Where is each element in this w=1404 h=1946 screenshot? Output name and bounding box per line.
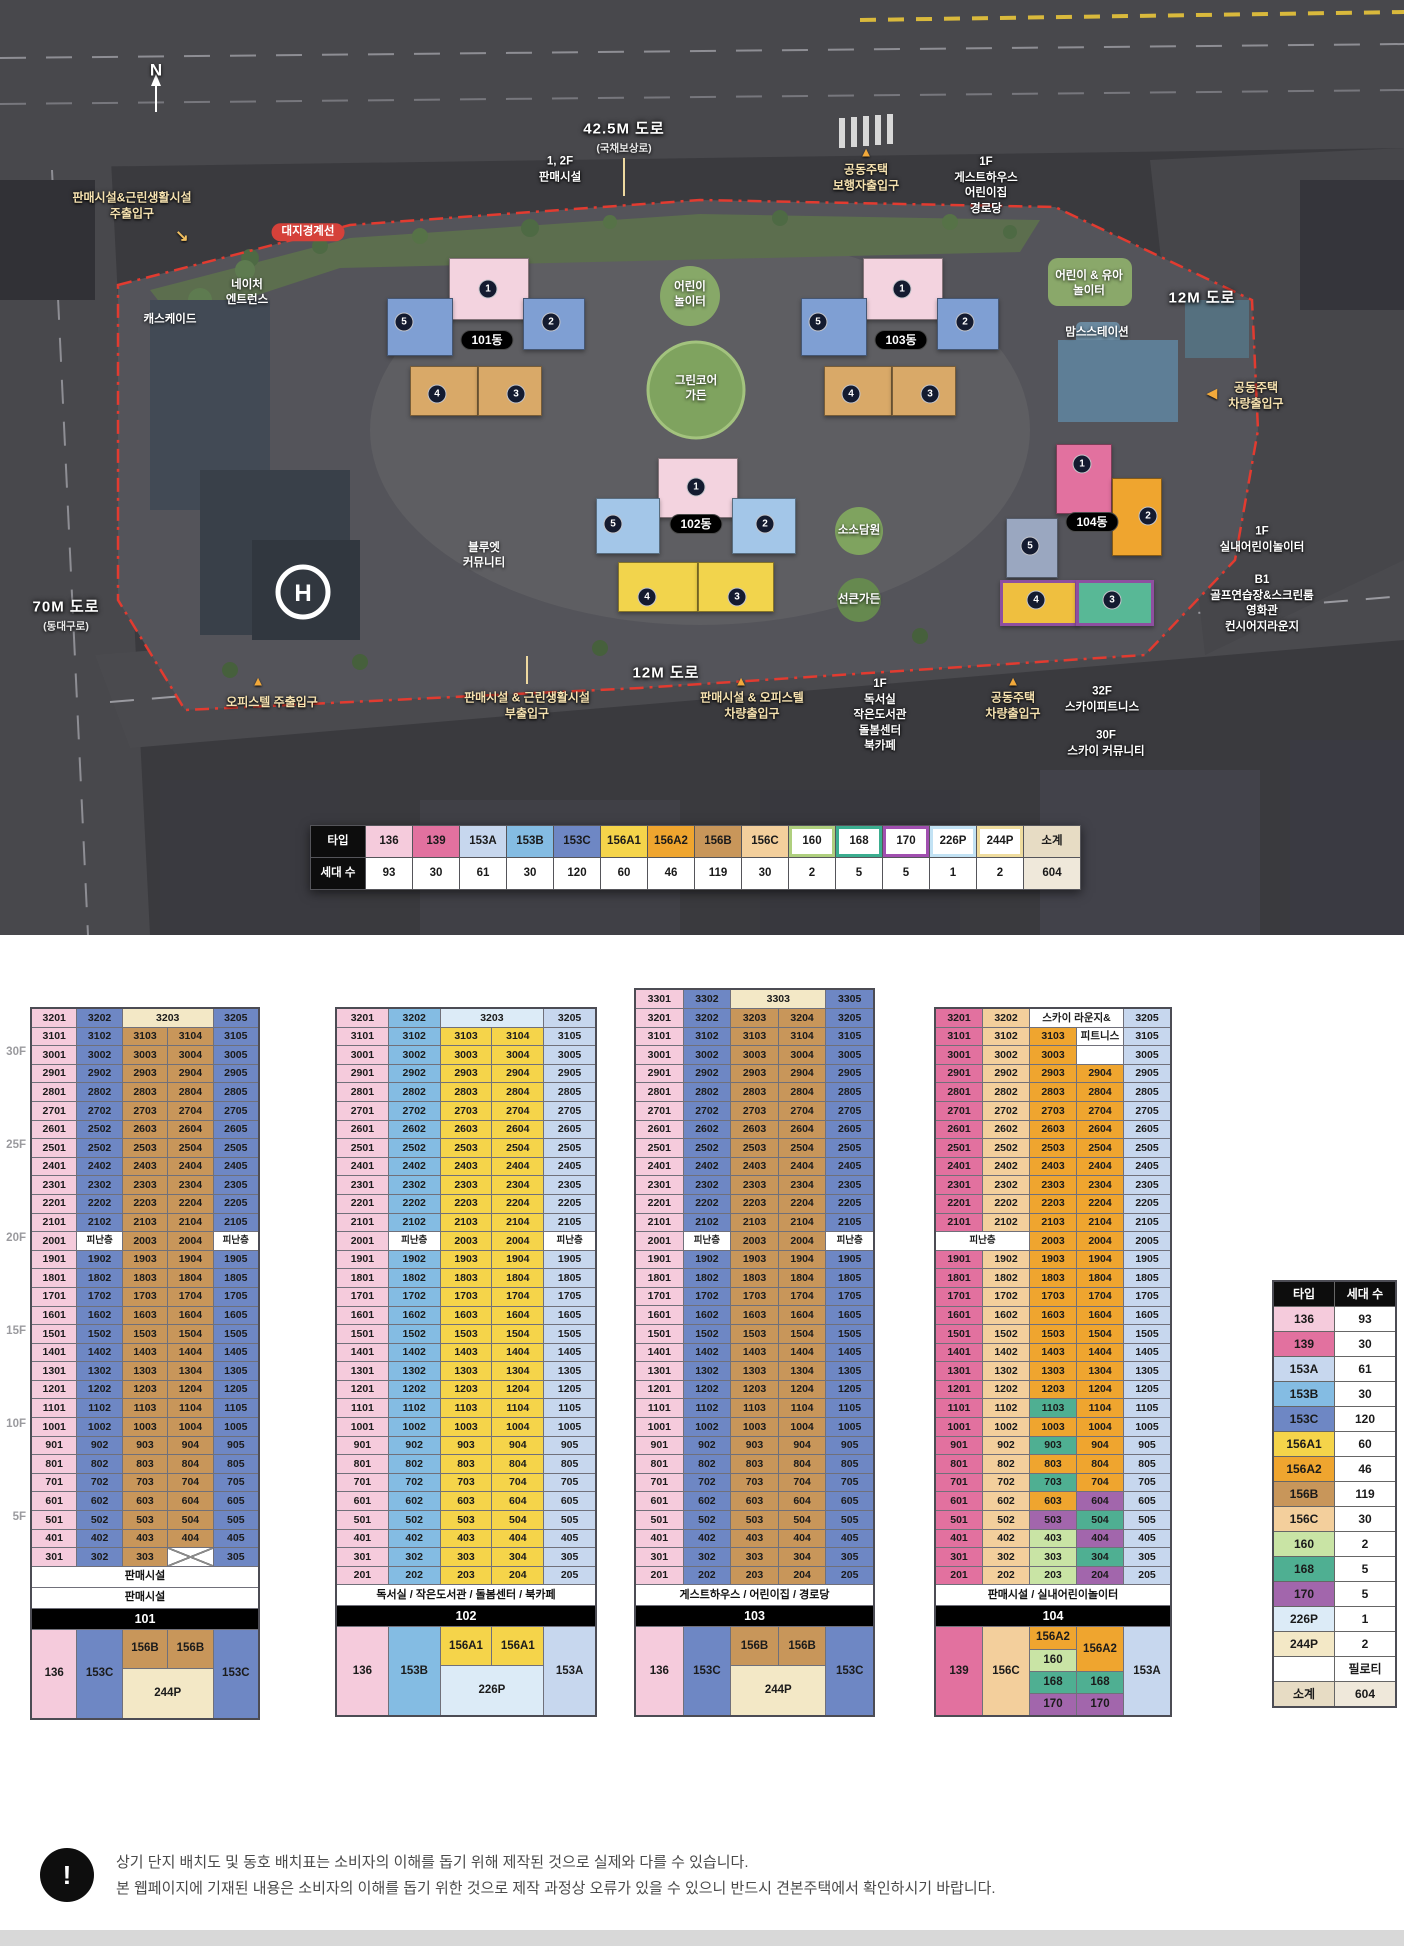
floor-row: 10011002100310041005 [636, 1418, 873, 1436]
unit-cell: 1603 [123, 1307, 167, 1325]
unit-cell: 1904 [779, 1251, 826, 1269]
unit-number-badge: 4 [638, 588, 657, 607]
unit-cell: 3001 [636, 1046, 683, 1064]
floor-row: 401402403404405 [636, 1530, 873, 1548]
floor-row: 28012802280328042805 [32, 1083, 258, 1101]
unit-cell: 1001 [337, 1418, 388, 1436]
unit-cell: 805 [1124, 1455, 1170, 1473]
unit-cell: 204 [492, 1567, 543, 1585]
unit-cell: 1104 [779, 1399, 826, 1417]
unit-cell: 1703 [123, 1288, 167, 1306]
unit-cell: 1505 [544, 1325, 595, 1343]
floor-row: 24012402240324042405 [636, 1158, 873, 1176]
road-label-12m-bottom: 12M 도로 [633, 665, 700, 684]
unit-cell: 2102 [983, 1214, 1029, 1232]
unit-cell: 3005 [1124, 1046, 1170, 1064]
unit-cell: 2302 [389, 1176, 440, 1194]
footer-type-156A2: 156A2 [1030, 1627, 1076, 1648]
unit-cell: 1002 [684, 1418, 731, 1436]
unit-cell: 3101 [337, 1028, 388, 1046]
unit-cell: 1604 [779, 1306, 826, 1324]
unit-cell: 1904 [168, 1251, 212, 1269]
unit-cell: 1804 [168, 1269, 212, 1287]
unit-cell: 2605 [826, 1121, 873, 1139]
unit-cell: 3301 [636, 990, 683, 1008]
unit-cell: 2604 [779, 1121, 826, 1139]
unit-cell: 2902 [77, 1065, 121, 1083]
unit-cell: 804 [1077, 1455, 1123, 1473]
unit-cell: 1503 [123, 1325, 167, 1343]
floor-row: 501502503504505 [32, 1511, 258, 1529]
floor-row: 23012302230323042305 [337, 1176, 595, 1194]
unit-cell: 305 [1124, 1548, 1170, 1566]
floor-row: 22012202220322042205 [32, 1195, 258, 1213]
unit-cell: 2201 [32, 1195, 76, 1213]
unit-cell: 905 [214, 1437, 258, 1455]
footer-type-168: 168 [1077, 1672, 1123, 1693]
unit-cell: 902 [77, 1437, 121, 1455]
unit-cell: 1804 [492, 1269, 543, 1287]
building-pill-101동: 101동 [460, 330, 513, 350]
unit-cell: 1503 [441, 1325, 492, 1343]
unit-cell: 404 [1077, 1530, 1123, 1548]
unit-cell: 1902 [684, 1251, 731, 1269]
unit-cell: 901 [636, 1437, 683, 1455]
unit-cell: 603 [1030, 1492, 1076, 1510]
unit-cell: 401 [636, 1530, 683, 1548]
unit-cell: 2104 [492, 1214, 543, 1232]
unit-cell: 203 [1030, 1567, 1076, 1585]
unit-cell: 1701 [32, 1288, 76, 1306]
legend-count-156A2: 46 [648, 858, 694, 889]
unit-cell: 2903 [441, 1065, 492, 1083]
unit-cell: 3103 [123, 1028, 167, 1046]
footer-type-156A1: 156A1 [441, 1627, 492, 1665]
unit-cell: 1705 [544, 1288, 595, 1306]
unit-cell: 1401 [636, 1344, 683, 1362]
unit-cell: 2105 [826, 1214, 873, 1232]
unit-cell: 3101 [636, 1028, 683, 1046]
unit-cell: 3202 [684, 1009, 731, 1027]
unit-cell: 1901 [636, 1251, 683, 1269]
unit-number-badge: 5 [809, 313, 828, 332]
tower-table-104: 32013202스카이 라운지&3205310131023103피트니스3105… [934, 1007, 1172, 1717]
unit-cell: 1101 [337, 1399, 388, 1417]
floor-row: 12011202120312041205 [636, 1381, 873, 1399]
unit-cell: 1802 [389, 1269, 440, 1287]
footer-type-153C: 153C [214, 1630, 258, 1718]
legend-count-156A1: 60 [601, 858, 647, 889]
unit-cell: 피난층 [389, 1232, 440, 1250]
unit-cell: 2601 [636, 1121, 683, 1139]
unit-cell: 905 [826, 1437, 873, 1455]
unit-tables-section: 30F25F20F15F10F5F 3201320232033205310131… [0, 935, 1404, 1830]
floor-row: 19011902190319041905 [337, 1251, 595, 1269]
label-kids-playground: 어린이 & 유아 놀이터 [1055, 269, 1123, 299]
disclaimer-line-2: 본 웹페이지에 기재된 내용은 소비자의 이해를 돕기 위한 것으로 제작 과정… [116, 1876, 996, 1902]
unit-cell: 3103 [731, 1028, 778, 1046]
unit-cell: 903 [441, 1437, 492, 1455]
side-type-153A: 153A [1274, 1357, 1334, 1381]
label-playground: 어린이 놀이터 [674, 280, 706, 310]
unit-cell: 2403 [731, 1158, 778, 1176]
floor-row: 18011802180318041805 [636, 1269, 873, 1287]
unit-number-badge: 4 [842, 385, 861, 404]
unit-cell: 1103 [123, 1399, 167, 1417]
facility-row: 판매시설 [32, 1567, 258, 1587]
unit-cell: 604 [1077, 1492, 1123, 1510]
floor-row: 22012202220322042205 [936, 1195, 1170, 1213]
unit-cell: 1401 [32, 1344, 76, 1362]
unit-cell: 803 [731, 1455, 778, 1473]
unit-cell: 1902 [983, 1251, 1029, 1269]
unit-cell: 902 [389, 1437, 440, 1455]
floor-row: 24012402240324042405 [337, 1158, 595, 1176]
unit-cell: 205 [544, 1567, 595, 1585]
label-retail-sub-entrance: 판매시설 & 근린생활시설 부출입구 [464, 690, 590, 721]
unit-cell: 2601 [936, 1121, 982, 1139]
building-pill-102동: 102동 [669, 514, 722, 534]
unit-cell: 1605 [544, 1307, 595, 1325]
unit-number-badge: 2 [542, 313, 561, 332]
facility-row: 독서실 / 작은도서관 / 돌봄센터 / 북카페 [337, 1585, 595, 1605]
triangle-marker: ▲ [735, 675, 748, 688]
unit-cell: 2705 [1124, 1102, 1170, 1120]
unit-cell: 2504 [1077, 1139, 1123, 1157]
disclaimer: ! 상기 단지 배치도 및 동호 배치표는 소비자의 이해를 돕기 위해 제작된… [40, 1848, 1374, 1902]
unit-cell: 1203 [441, 1381, 492, 1399]
unit-cell: 905 [544, 1437, 595, 1455]
unit-cell: 2702 [77, 1102, 121, 1120]
unit-cell: 2205 [544, 1195, 595, 1213]
unit-cell: 2505 [1124, 1139, 1170, 1157]
unit-cell: 702 [684, 1474, 731, 1492]
unit-cell: 2202 [389, 1195, 440, 1213]
unit-cell: 3001 [337, 1046, 388, 1064]
unit-cell: 2905 [826, 1065, 873, 1083]
unit-cell: 1602 [389, 1307, 440, 1325]
floor-row: 11011102110311041105 [337, 1399, 595, 1417]
unit-cell: 1302 [684, 1362, 731, 1380]
unit-cell: 2405 [1124, 1158, 1170, 1176]
triangle-marker: ▲ [1007, 675, 1020, 688]
floor-row: 3001300230033005 [936, 1046, 1170, 1064]
floor-row: 19011902190319041905 [636, 1251, 873, 1269]
unit-cell: 2403 [1030, 1158, 1076, 1176]
label-green-core-garden: 그린코어 가든 [675, 374, 717, 404]
floor-row: 401402403404405 [936, 1530, 1170, 1548]
unit-cell: 1201 [636, 1381, 683, 1399]
unit-cell: 3203 [731, 1009, 778, 1027]
unit-cell: 2001 [636, 1232, 683, 1250]
unit-cell: 2105 [1124, 1214, 1170, 1232]
unit-cell: 2802 [389, 1083, 440, 1101]
unit-cell: 804 [779, 1455, 826, 1473]
unit-cell: 2704 [1077, 1102, 1123, 1120]
floor-row: 21012102210321042105 [32, 1214, 258, 1232]
floor-row: 901902903904905 [337, 1437, 595, 1455]
unit-cell: 702 [983, 1474, 1029, 1492]
unit-cell: 204 [779, 1567, 826, 1585]
unit-cell: 1102 [389, 1399, 440, 1417]
side-type-156C: 156C [1274, 1507, 1334, 1531]
unit-number-badge: 3 [1103, 591, 1122, 610]
unit-cell: 603 [731, 1492, 778, 1510]
unit-cell: 2102 [389, 1214, 440, 1232]
unit-cell: 1004 [168, 1418, 212, 1436]
unit-cell: 901 [936, 1437, 982, 1455]
unit-cell: 2701 [936, 1102, 982, 1120]
unit-cell: 1303 [1030, 1362, 1076, 1380]
floor-row: 26012602260326042605 [936, 1121, 1170, 1139]
unit-cell: 3002 [684, 1046, 731, 1064]
unit-cell: 2203 [441, 1195, 492, 1213]
unit-cell: 1405 [826, 1344, 873, 1362]
unit-cell: 502 [983, 1511, 1029, 1529]
floor-row: 801802803804805 [636, 1455, 873, 1473]
floor-row: 30013002300330043005 [337, 1046, 595, 1064]
label-1f-library: 1F 독서실 작은도서관 돌봄센터 북카페 [854, 677, 907, 755]
unit-cell: 1205 [544, 1381, 595, 1399]
label-indoor-playground: 1F 실내어린이놀이터 [1220, 524, 1305, 555]
label-b1-amenities: B1 골프연습장&스크린룸 영화관 컨시어지라운지 [1210, 573, 1314, 635]
unit-cell: 3004 [779, 1046, 826, 1064]
unit-cell: 303 [731, 1548, 778, 1566]
unit-cell: 305 [826, 1548, 873, 1566]
side-type-160: 160 [1274, 1532, 1334, 1556]
floor-row: 501502503504505 [337, 1511, 595, 1529]
site-legend-table: 타입136139153A153B153C156A1156A2156B156C16… [310, 825, 1081, 890]
legend-count-139: 30 [413, 858, 459, 889]
unit-cell: 305 [214, 1548, 258, 1566]
unit-cell: 1305 [214, 1362, 258, 1380]
unit-cell: 2504 [168, 1139, 212, 1157]
floor-row: 29012902290329042905 [337, 1065, 595, 1083]
unit-cell: 1003 [731, 1418, 778, 1436]
unit-cell: 705 [1124, 1474, 1170, 1492]
unit-cell: 503 [441, 1511, 492, 1529]
unit-cell: 2502 [77, 1139, 121, 1157]
unit-cell: 1101 [936, 1399, 982, 1417]
unit-cell: 901 [337, 1437, 388, 1455]
floor-row: 14011402140314041405 [636, 1344, 873, 1362]
floor-row: 301302303304305 [636, 1548, 873, 1566]
unit-cell: 1402 [389, 1344, 440, 1362]
unit-cell: 1705 [826, 1288, 873, 1306]
unit-number-badge: 5 [395, 313, 414, 332]
unit-cell: 1603 [441, 1307, 492, 1325]
floor-row: 22012202220322042205 [337, 1195, 595, 1213]
floor-label-25F: 25F [0, 1137, 26, 1155]
unit-cell: 3003 [731, 1046, 778, 1064]
unit-cell: 1304 [779, 1362, 826, 1380]
unit-number-badge: 1 [479, 280, 498, 299]
unit-cell: 2805 [544, 1083, 595, 1101]
unit-cell: 3105 [1124, 1028, 1170, 1046]
unit-cell: 2804 [779, 1083, 826, 1101]
unit-cell: 1002 [77, 1418, 121, 1436]
unit-cell: 1905 [1124, 1251, 1170, 1269]
unit-cell: 1502 [389, 1325, 440, 1343]
unit-cell: 2701 [337, 1102, 388, 1120]
unit-cell: 802 [983, 1455, 1029, 1473]
unit-cell: 701 [636, 1474, 683, 1492]
unit-cell: 504 [168, 1511, 212, 1529]
unit-cell: 2103 [441, 1214, 492, 1232]
unit-cell: 2201 [636, 1195, 683, 1213]
floor-row: 21012102210321042105 [936, 1214, 1170, 1232]
unit-cell: 302 [983, 1548, 1029, 1566]
unit-cell: 1103 [441, 1399, 492, 1417]
legend-count-160: 2 [789, 858, 835, 889]
side-type-170: 170 [1274, 1582, 1334, 1606]
unit-cell: 2701 [32, 1102, 76, 1120]
unit-cell: 2001 [337, 1232, 388, 1250]
unit-cell: 2703 [1030, 1102, 1076, 1120]
unit-cell: 1801 [32, 1269, 76, 1287]
floor-row: 3301330233033305 [636, 990, 873, 1008]
unit-cell: 202 [389, 1567, 440, 1585]
label-32f-sky-fitness: 32F 스카이피트니스 [1065, 684, 1139, 715]
tower-name-104: 104 [936, 1606, 1170, 1626]
unit-cell: 1905 [826, 1251, 873, 1269]
unit-cell: 603 [123, 1492, 167, 1510]
floor-row: 29012902290329042905 [32, 1065, 258, 1083]
legend-type-136: 136 [366, 826, 412, 857]
unit-cell: 3001 [32, 1046, 76, 1064]
unit-cell: 2204 [492, 1195, 543, 1213]
legend-count-156B: 119 [695, 858, 741, 889]
footer-mid-top: 156B156B [123, 1630, 213, 1668]
footer-type-156A2: 156A2 [1077, 1627, 1123, 1671]
label-moms-station: 맘스스테이션 [1065, 326, 1128, 341]
unit-cell: 502 [684, 1511, 731, 1529]
disclaimer-line-1: 상기 단지 배치도 및 동호 배치표는 소비자의 이해를 돕기 위해 제작된 것… [116, 1850, 996, 1876]
unit-cell: 3102 [389, 1028, 440, 1046]
unit-cell: 704 [168, 1474, 212, 1492]
unit-cell: 403 [731, 1530, 778, 1548]
floor-label-20F: 20F [0, 1230, 26, 1248]
unit-cell: 2802 [77, 1083, 121, 1101]
footer-type-170: 170 [1030, 1694, 1076, 1715]
side-type-226P: 226P [1274, 1607, 1334, 1631]
unit-cell: 1803 [1030, 1269, 1076, 1287]
unit-cell: 1805 [1124, 1269, 1170, 1287]
unit-cell: 피난층 [77, 1232, 121, 1250]
footer-type-156B: 156B [123, 1630, 167, 1668]
unit-cell: 602 [389, 1492, 440, 1510]
unit-cell: 2503 [1030, 1139, 1076, 1157]
unit-cell: 3202 [983, 1009, 1029, 1027]
unit-cell: 1603 [1030, 1307, 1076, 1325]
floor-row: 13011302130313041305 [337, 1362, 595, 1380]
unit-cell: 2004 [492, 1232, 543, 1250]
label-vehicle-entrance-bottom: 공동주택 차량출입구 [985, 690, 1040, 721]
unit-cell: 602 [983, 1492, 1029, 1510]
unit-cell: 304 [779, 1548, 826, 1566]
unit-cell: 1205 [214, 1381, 258, 1399]
unit-cell: 2005 [1124, 1232, 1170, 1250]
unit-cell: 1902 [77, 1251, 121, 1269]
unit-cell: 2401 [936, 1158, 982, 1176]
unit-cell: 1403 [123, 1344, 167, 1362]
legend-count-226P: 1 [930, 858, 976, 889]
side-type-168: 168 [1274, 1557, 1334, 1581]
unit-cell: 1303 [731, 1362, 778, 1380]
unit-cell: 3201 [32, 1009, 76, 1027]
unit-cell: 1701 [636, 1288, 683, 1306]
unit-cell: 2504 [779, 1139, 826, 1157]
unit-cell: 403 [441, 1530, 492, 1548]
unit-cell: 604 [492, 1492, 543, 1510]
triangle-marker: ▲ [252, 675, 265, 688]
footer-types: 136153B156A1156A1226P153A [337, 1627, 595, 1715]
unit-cell: 1503 [731, 1325, 778, 1343]
legend-type-156A2: 156A2 [648, 826, 694, 857]
unit-cell: 802 [77, 1455, 121, 1473]
unit-cell: 1002 [983, 1418, 1029, 1436]
unit-cell: 302 [684, 1548, 731, 1566]
unit-cell: 3003 [441, 1046, 492, 1064]
floor-row: 12011202120312041205 [32, 1381, 258, 1399]
floor-row: 201202203204205 [636, 1567, 873, 1585]
unit-cell: 2605 [214, 1121, 258, 1139]
unit-cell: 1803 [731, 1269, 778, 1287]
floor-row: 401402403404405 [32, 1530, 258, 1548]
unit-cell: 1403 [441, 1344, 492, 1362]
side-count-160: 2 [1335, 1532, 1395, 1556]
floor-row: 13011302130313041305 [32, 1362, 258, 1380]
unit-cell: 1301 [936, 1362, 982, 1380]
unit-cell: 1102 [983, 1399, 1029, 1417]
floor-row: 3201320232033205 [32, 1009, 258, 1027]
unit-cell: 1501 [337, 1325, 388, 1343]
unit-cell: 2705 [544, 1102, 595, 1120]
floor-label-15F: 15F [0, 1323, 26, 1341]
unit-cell: 301 [936, 1548, 982, 1566]
unit-cell: 2801 [32, 1083, 76, 1101]
label-30f-sky-community: 30F 스카이 커뮤니티 [1067, 728, 1144, 759]
unit-cell: 1104 [168, 1399, 212, 1417]
footer-type-136: 136 [636, 1627, 683, 1715]
unit-cell: 2304 [168, 1176, 212, 1194]
footer-type-153A: 153A [544, 1627, 595, 1715]
unit-cell: 2404 [492, 1158, 543, 1176]
unit-cell: 605 [1124, 1492, 1170, 1510]
unit-cell: 905 [1124, 1437, 1170, 1455]
unit-number-badge: 1 [893, 280, 912, 299]
unit-cell: 1204 [1077, 1381, 1123, 1399]
unit-cell: 3102 [77, 1028, 121, 1046]
footer-type-226P: 226P [441, 1666, 544, 1715]
unit-cell: 501 [936, 1511, 982, 1529]
floor-row: 27012702270327042705 [32, 1102, 258, 1120]
unit-cell: 1401 [936, 1344, 982, 1362]
unit-cell: 1303 [441, 1362, 492, 1380]
legend-count-168: 5 [836, 858, 882, 889]
unit-cell: 703 [1030, 1474, 1076, 1492]
footer-type-168: 168 [1030, 1672, 1076, 1693]
unit-cell: 1001 [32, 1418, 76, 1436]
unit-cell: 1102 [684, 1399, 731, 1417]
building-pill-103동: 103동 [874, 330, 927, 350]
unit-cell: 404 [779, 1530, 826, 1548]
unit-cell: 1802 [77, 1269, 121, 1287]
floor-row: 25012502250325042505 [936, 1139, 1170, 1157]
unit-cell: 3204 [779, 1009, 826, 1027]
unit-cell: 1702 [684, 1288, 731, 1306]
unit-cell: 2802 [684, 1083, 731, 1101]
